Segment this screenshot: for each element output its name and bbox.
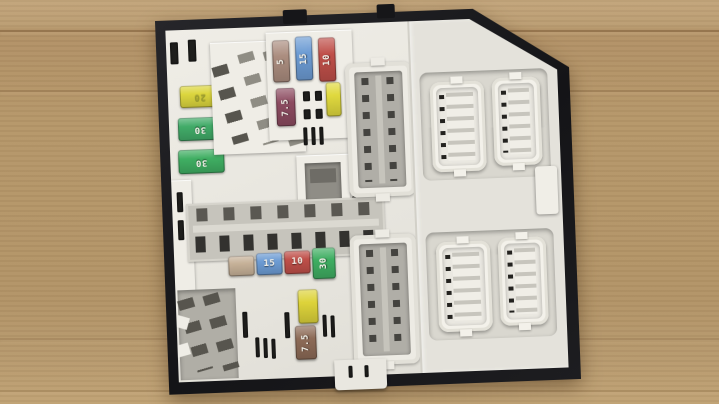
pin-column <box>361 78 372 182</box>
connector-slot-row <box>196 202 376 222</box>
vent-slit <box>242 312 248 338</box>
bottom-connector-tab <box>334 358 387 390</box>
white-connector <box>436 240 493 332</box>
tab-slit <box>364 365 368 377</box>
side-clip-tab <box>535 166 559 215</box>
socket-cavity <box>310 168 337 183</box>
fuse-value: 15 <box>299 52 308 64</box>
fuse-yellow <box>297 289 318 324</box>
fuse-value: 7.5 <box>281 98 291 116</box>
multipin-connector-top <box>345 61 416 197</box>
connector-rungs <box>508 88 532 155</box>
connector-latch-tab <box>375 229 389 238</box>
white-cover: 20 30 30 5 15 10 <box>165 16 568 383</box>
connector-cavity <box>354 71 406 189</box>
connector-latch-tab <box>371 57 385 66</box>
fuse-value: 15 <box>263 259 275 268</box>
vent-slit <box>263 338 268 358</box>
fuse-value: 10 <box>291 258 303 267</box>
connector-latch-tab <box>456 236 468 243</box>
fuse-tan <box>228 255 255 276</box>
empty-fuse-contact <box>303 109 310 119</box>
fuse-10a: 10 <box>318 37 337 82</box>
fuse-yellow <box>325 82 341 117</box>
fuse-value: 7.5 <box>301 333 311 351</box>
vent-slit <box>255 337 260 357</box>
multipin-connector-bottom <box>349 233 420 365</box>
connector-divider <box>375 75 385 183</box>
connector-latch-tab <box>509 72 521 79</box>
vent-slit <box>284 312 290 338</box>
fuse-10a: 10 <box>284 250 311 274</box>
empty-fuse-contact <box>303 91 310 101</box>
fuse-15a: 15 <box>295 36 314 81</box>
vent-slit <box>319 127 324 145</box>
base-mount-tab <box>283 9 308 24</box>
pin-column <box>366 250 377 350</box>
fuse-30a: 30 <box>312 247 336 279</box>
fuse-value: 30 <box>195 157 207 166</box>
connector-latch-tab <box>450 76 462 83</box>
wall-slit <box>178 220 185 240</box>
empty-fuse-contact <box>315 109 322 119</box>
white-connector <box>491 76 542 166</box>
fuse-15a: 15 <box>256 252 283 275</box>
connector-cavity <box>359 243 411 357</box>
fuse-7-5a: 7.5 <box>276 88 296 127</box>
fuse-value: 20 <box>194 92 206 101</box>
white-connector <box>430 80 487 172</box>
terminal-slot <box>170 42 179 64</box>
connector-divider <box>380 247 390 351</box>
connector-latch-tab <box>513 163 525 170</box>
tab-slit <box>348 366 352 378</box>
fuse-value: 5 <box>276 58 285 64</box>
vent-slit <box>311 127 316 145</box>
connector-latch-tab <box>376 193 390 202</box>
vent-slit <box>271 339 276 359</box>
white-connector <box>498 236 549 326</box>
vent-slit <box>322 315 327 337</box>
vent-slit <box>330 315 335 337</box>
pin-column <box>386 77 397 181</box>
fuse-value: 30 <box>319 257 328 269</box>
connector-latch-tab <box>460 329 472 336</box>
vent-slit <box>303 127 308 145</box>
connector-rungs <box>514 248 538 315</box>
empty-fuse-contact <box>315 91 322 101</box>
base-mount-tab <box>377 4 396 19</box>
wall-slit <box>177 192 184 212</box>
relay-slot-bay <box>177 288 238 380</box>
fuse-value: 30 <box>194 124 206 133</box>
cardboard-crease <box>0 390 719 392</box>
fuse-7-5a: 7.5 <box>295 325 317 360</box>
fuse-box-unit: 20 30 30 5 15 10 <box>155 5 581 395</box>
photo-scene: 20 30 30 5 15 10 <box>0 0 719 404</box>
fuse-value: 10 <box>322 53 331 65</box>
pin-column <box>391 249 402 349</box>
connector-rungs <box>446 92 476 161</box>
terminal-slot <box>188 39 197 61</box>
connector-latch-tab <box>515 232 527 239</box>
connector-latch-tab <box>454 169 466 176</box>
fuse-5a: 5 <box>272 40 291 83</box>
connector-latch-tab <box>519 323 531 330</box>
connector-rungs <box>452 252 482 321</box>
